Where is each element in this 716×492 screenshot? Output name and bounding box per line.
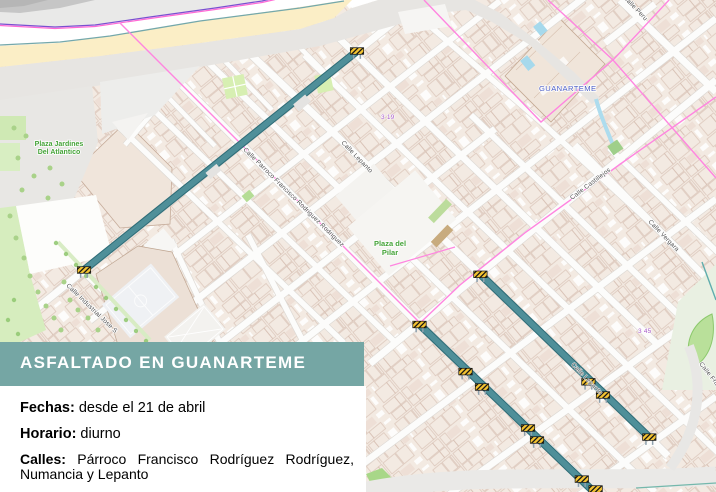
svg-text:3 19: 3 19 — [381, 114, 395, 121]
svg-text:Pilar: Pilar — [382, 248, 398, 257]
svg-text:GUANARTEME: GUANARTEME — [539, 84, 596, 93]
svg-text:3 45: 3 45 — [638, 328, 652, 335]
svg-text:Plaza del: Plaza del — [374, 239, 406, 248]
svg-text:Plaza Jardines: Plaza Jardines — [35, 141, 84, 148]
svg-text:Del Atlantico: Del Atlantico — [38, 149, 81, 156]
